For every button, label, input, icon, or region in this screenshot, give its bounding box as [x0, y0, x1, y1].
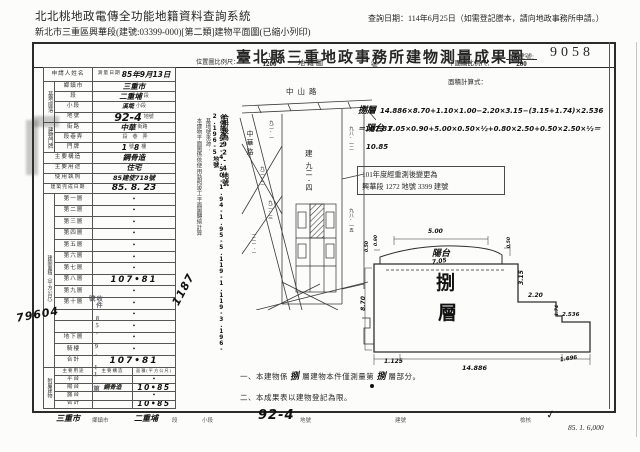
- building-no: 9058: [550, 45, 594, 61]
- structure-value-cell: 鋼骨造: [93, 153, 176, 163]
- annex-total-area: 10•85: [137, 401, 170, 408]
- floor-plan-floor-char1: 捌: [436, 268, 455, 295]
- parcel-label: 九二-二: [258, 166, 265, 185]
- note-1: 一、本建物係 捌 層建物本件僅測量第 捌 層部分。: [240, 369, 421, 382]
- dim-step-vertical: 3.15: [518, 270, 525, 285]
- annex-use: 合計: [55, 401, 93, 409]
- floor-value: •: [93, 240, 176, 252]
- street-suffix: 街路: [137, 125, 147, 130]
- cadastral-map-label: 地籍圖: [298, 58, 325, 68]
- balcony-area: 10•85: [137, 384, 170, 391]
- annex-structure: [93, 376, 133, 384]
- dim-step-horizontal: 2.20: [528, 292, 543, 299]
- remeasure-note-line2: 興華段 1272 地號 3399 建號: [362, 181, 500, 193]
- area-total-value-cell: 107•81: [93, 356, 176, 368]
- structure-label: 主要構造: [44, 153, 93, 163]
- plan-scale-denominator: 200: [506, 60, 537, 68]
- floor-value: •: [93, 252, 176, 264]
- parcel-source-label: 基地號來源：: [204, 118, 210, 213]
- plan-scale-fraction: 1 200: [506, 53, 537, 68]
- scanned-document: 北北桃地政電傳全功能地籍資料查詢系統 查詢日期：114年6月25日（如需登記謄本…: [0, 0, 640, 452]
- floor-value-eighth: 107•81: [93, 275, 176, 287]
- floor-label: 第一層: [55, 194, 93, 206]
- site-parcel-suffix: 地號: [144, 115, 154, 120]
- dim-bottom-total: 14.886: [462, 364, 487, 372]
- parcel-label: 九八-一五: [347, 208, 354, 232]
- annex-structure: [93, 401, 133, 409]
- registration-table: 申請人姓名 測量日期 85年9月13日 基地座落 鄉鎮市 三重市 段 二重埔段 …: [43, 67, 176, 409]
- site-row-value: 二重埔段: [93, 92, 176, 102]
- floor-value: •: [93, 229, 176, 241]
- plan-scale-numerator: 1: [506, 53, 537, 60]
- parcel-label: 九八-一二: [347, 126, 354, 150]
- formula-line-2: 陽台 7.05×0.90+5.00×0.50×½+0.80×2.50+0.50×…: [366, 118, 610, 154]
- annex-group-label: 附屬建物: [44, 368, 55, 409]
- floor-value: •: [93, 344, 176, 356]
- note-2: 二、本成果表以建物登記為限。: [240, 392, 352, 403]
- table-section-areas: 建築面積（平方公尺） 第一層 • 第二層 • 第三層 • 第四層 • 第五層 •…: [43, 194, 176, 368]
- note-1-text: 層部分。: [389, 372, 421, 381]
- eighth-floor-area: 107•81: [110, 276, 157, 285]
- parcel-label: 九二-三: [266, 200, 273, 219]
- dim-balcony-depth: 0.90: [374, 235, 379, 246]
- floor-value: •: [93, 310, 176, 322]
- footer-section-hand: 二重埔: [134, 413, 158, 424]
- floor-label: 第五層: [55, 240, 93, 252]
- footer-section-label: 段: [172, 416, 178, 424]
- page-edge-line: [636, 42, 637, 437]
- ink-dot: [370, 384, 374, 388]
- site-row-value: 三重市: [93, 82, 176, 92]
- annex-structure: 鋼骨造: [93, 384, 133, 392]
- floor-value: •: [93, 194, 176, 206]
- use-label: 主要用途: [44, 164, 93, 174]
- footer-check-label: 檢核: [520, 416, 531, 424]
- use-value-cell: 住宅: [93, 164, 176, 174]
- area-total-value: 107•81: [109, 357, 158, 366]
- note-1-hand-floor: 捌: [377, 372, 387, 382]
- query-date: 查詢日期：114年6月25日（如需登記謄本，請向地政事務所申請。）: [368, 13, 604, 24]
- door-row-label: 門牌: [55, 143, 93, 153]
- system-title: 北北桃地政電傳全功能地籍資料查詢系統: [35, 8, 251, 24]
- door-floor-suffix: 樓: [141, 145, 146, 150]
- floor-label: 第七層: [55, 263, 93, 275]
- annex-area: •: [133, 392, 176, 400]
- ink-smudge: [26, 120, 38, 175]
- note-1-text: 一、本建物係: [240, 372, 288, 381]
- scale-denominator: 1200: [262, 60, 277, 68]
- site-subsection-suffix: 小段: [136, 104, 146, 109]
- floor-label: 第三層: [55, 217, 93, 229]
- footer-building-no-label: 建號: [395, 416, 406, 424]
- site-row-label: 地號: [55, 113, 93, 123]
- dim-end-left: 0.50: [365, 241, 370, 252]
- completion-value: 85. 8. 23: [112, 184, 156, 193]
- door-group-label: 建物門牌: [44, 123, 55, 154]
- license-value: 85建使718號: [113, 175, 155, 182]
- note-1-hand-floor: 捌: [290, 369, 301, 383]
- floor-value: •: [93, 206, 176, 218]
- survey-date-label: 測量日期: [98, 72, 121, 77]
- use-value: 住宅: [127, 164, 142, 172]
- lane-alley-print: 段 巷 弄: [122, 135, 147, 140]
- site-row-value: 溪墘小段: [93, 102, 176, 112]
- area-formula-label: 面積計算式：: [448, 76, 487, 86]
- applicant-label: 申請人姓名: [44, 68, 93, 82]
- balcony-structure: 鋼骨造: [103, 385, 121, 391]
- parcel-source-after: 合併後為92-4地號: [220, 114, 228, 234]
- annex-area: 10•85: [133, 401, 176, 409]
- site-subsection: 溪墘: [122, 104, 134, 110]
- annex-area: •: [133, 376, 176, 384]
- site-city: 三重市: [123, 83, 146, 91]
- dim-notch-vertical: 1.74: [555, 305, 560, 316]
- site-row-label: 小段: [55, 102, 93, 112]
- floor-value: •: [93, 286, 176, 298]
- dim-notch-width: 2.536: [562, 312, 579, 318]
- parcel-center-prefix: 建: [305, 148, 313, 159]
- floor-value: •: [93, 333, 176, 345]
- road-label-left: 中華路: [245, 130, 255, 157]
- footer-city-hand: 三重市: [56, 413, 80, 424]
- license-label: 使用執照: [44, 174, 93, 184]
- site-section-suffix: 段: [144, 94, 149, 99]
- location-scale-label: 位置圖比例尺：: [196, 57, 239, 66]
- floor-value: •: [93, 321, 176, 333]
- footer-parcel-hand: 92-4: [258, 408, 295, 423]
- site-row-value: 92-4地號: [93, 113, 176, 123]
- street-name: 中華: [120, 124, 135, 132]
- table-section-basic: 申請人姓名 測量日期 85年9月13日 基地座落 鄉鎮市 三重市 段 二重埔段 …: [43, 67, 176, 194]
- site-section: 二重埔: [119, 93, 142, 101]
- license-value-cell: 85建使718號: [93, 174, 176, 184]
- remeasure-note-line1: 101年度經重測後變更為: [362, 169, 500, 181]
- footer-print-info: 85. 1. 6,000: [568, 423, 604, 432]
- door-floor-no: 8: [134, 144, 139, 152]
- door-row-label: 段巷弄: [55, 133, 93, 143]
- road-label-top: 中山路: [286, 86, 321, 97]
- survey-date-value: 85年9月13日: [122, 71, 171, 79]
- floor-label: 第四層: [55, 229, 93, 241]
- location-scale-fraction: 1 1200: [262, 53, 277, 68]
- site-row-label: 鄉鎮市: [55, 82, 93, 92]
- footer-city-label: 鄉鎮市: [92, 416, 109, 424]
- annex-area: 10•85: [133, 384, 176, 392]
- site-parcel-no: 92-4: [114, 113, 142, 123]
- floor-label: 第六層: [55, 252, 93, 264]
- table-section-annex: 附屬建物 主要用途 主要構造 面積(平方公尺) 平台 • 陽台 鋼骨造 10•8…: [43, 368, 176, 409]
- door-no: 1: [122, 144, 127, 152]
- remeasure-note-box: 101年度經重測後變更為 興華段 1272 地號 3399 建號: [357, 166, 505, 195]
- floor-label: 第八層: [55, 275, 93, 287]
- formula-1-name: 捌層: [358, 106, 376, 116]
- floor-plan-floor-char2: 層: [438, 298, 457, 325]
- footer-subsection-label: 小段: [202, 416, 213, 424]
- survey-date: 測量日期 85年9月13日: [93, 68, 176, 82]
- annex-header: 面積(平方公尺): [133, 368, 176, 377]
- door-row-label: 街路: [55, 123, 93, 133]
- no-suffix: 號: [371, 60, 378, 70]
- plan-source-note: 本建物平面圖係依使用執照竣工平面圖轉繪計算: [195, 118, 201, 346]
- document-subtitle: 新北市三重區興華段(建號:03399-000)[第二類]建物平面圖(已縮小列印): [35, 25, 310, 38]
- dim-end-right: 0.50: [507, 237, 512, 248]
- dim-bottom-left: 1.125: [384, 358, 403, 365]
- completion-label: 建築完成日期: [44, 184, 93, 194]
- site-row-label: 段: [55, 92, 93, 102]
- floor-value: •: [93, 263, 176, 275]
- dim-height: 8.70: [360, 296, 367, 311]
- plan-scale-label: 平面圖比例尺：: [448, 57, 494, 67]
- floor-value: •: [93, 298, 176, 310]
- completion-value-cell: 85. 8. 23: [93, 184, 176, 194]
- area-group-label: 建築面積（平方公尺）: [44, 194, 55, 368]
- door-row-value: 段 巷 弄: [93, 133, 176, 143]
- door-row-value: 中華街路: [93, 123, 176, 133]
- structure-value: 鋼骨造: [123, 154, 146, 162]
- formula-2-expr: 7.05×0.90+5.00×0.50×½+0.80×2.50+0.50×2.5…: [366, 125, 600, 151]
- floor-value: •: [93, 217, 176, 229]
- scale-numerator: 1: [262, 53, 277, 60]
- ink-smudge: [33, 116, 59, 127]
- floor-plan-drawing: [356, 226, 618, 378]
- parcel-center-number: 九二-四: [304, 162, 314, 191]
- dim-top: 5.00: [428, 228, 443, 235]
- parcel-label: 九二-一: [267, 120, 274, 139]
- footer-parcel-label: 地號: [300, 416, 311, 424]
- parcel-label: 一二一-一: [251, 232, 257, 255]
- note-1-text: 層建物本件僅測量第: [302, 372, 374, 381]
- annex-structure: [93, 392, 133, 400]
- door-row-value: 1 號 8 樓: [93, 143, 176, 153]
- formula-2-name: 陽台: [366, 124, 384, 134]
- floor-label: 第二層: [55, 206, 93, 218]
